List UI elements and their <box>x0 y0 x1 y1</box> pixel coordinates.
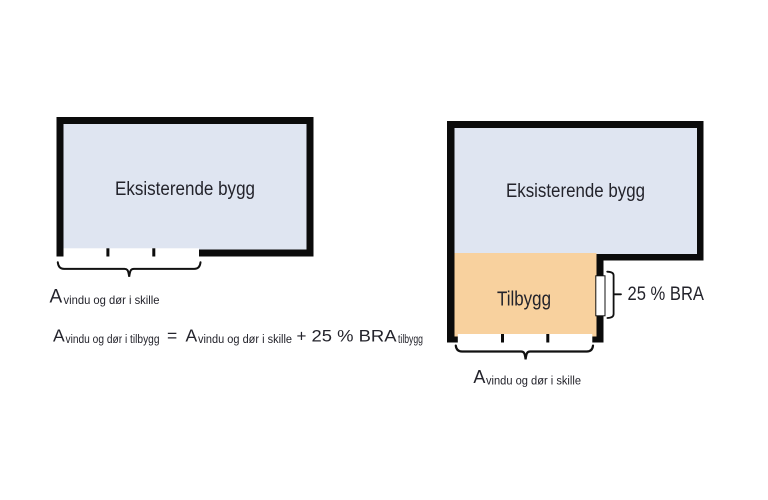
svg-text:Avindu og dør i skille: Avindu og dør i skille <box>473 367 581 388</box>
svg-text:Eksisterende bygg: Eksisterende bygg <box>115 178 255 200</box>
svg-text:Eksisterende bygg: Eksisterende bygg <box>506 180 645 202</box>
svg-text:Tilbygg: Tilbygg <box>497 288 551 310</box>
svg-text:Avindu og dør i tilbygg=Avindu: Avindu og dør i tilbygg=Avindu og dør i … <box>53 325 423 346</box>
svg-text:Avindu og dør i skille: Avindu og dør i skille <box>50 287 160 308</box>
svg-text:25 % BRA: 25 % BRA <box>628 284 705 305</box>
